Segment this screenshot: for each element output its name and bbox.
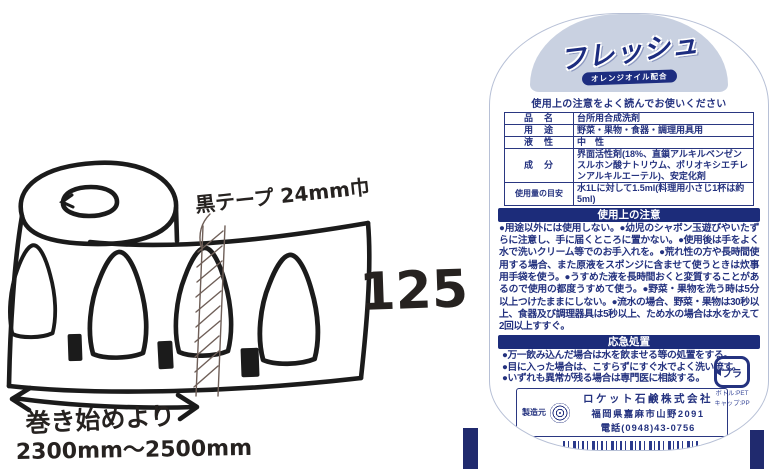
volume-text: 600ml [514, 441, 556, 451]
table-row: 液 性 中 性 [505, 136, 754, 148]
barcode [563, 441, 701, 451]
spec-value: 中 性 [574, 136, 754, 148]
product-label: フレッシュ オレンジオイル配合 使用上の注意をよく読んでお使いください 品 名 … [489, 13, 769, 451]
pura-recycle-icon: プラ [714, 356, 750, 388]
table-row: 品 名 台所用合成洗剤 [505, 113, 754, 125]
roll-right-edge [176, 208, 177, 241]
registration-mark-3 [241, 348, 260, 378]
brand-subtitle-badge: オレンジオイル配合 [582, 69, 677, 85]
spec-value: 台所用合成洗剤 [574, 113, 754, 125]
length-range-annotation: 2300mm〜2500mm [16, 436, 253, 465]
usage-caution-header: 使用上の注意 [498, 208, 760, 222]
spec-label: 使用量の目安 [505, 182, 574, 205]
roll-outline [21, 163, 176, 244]
tape-width-annotation: 黒テープ 24mm巾 [194, 175, 371, 217]
bottle-edge-right [750, 430, 764, 469]
spec-label: 液 性 [505, 136, 574, 148]
registration-mark-2 [157, 341, 173, 370]
usage-caution-body: ●用途以外には使用しない。●幼児のシャボン玉遊びやいたずらに注意し、手に届くとこ… [499, 223, 759, 334]
manufacturer-label: 製造元 [522, 407, 546, 418]
spec-table: 品 名 台所用合成洗剤 用 途 野菜・果物・食器・調理用具用 液 性 中 性 成… [504, 112, 754, 206]
registration-mark-1 [68, 334, 83, 361]
table-row: 成 分 界面活性剤(18%、直鎖アルキルベンゼンスルホン酸ナトリウム、ポリオキシ… [505, 148, 754, 182]
first-aid-header: 応急処置 [498, 335, 760, 349]
manufacturer-name: ロケット石鹸株式会社 [574, 391, 722, 406]
hand-drawn-roll-sketch: 黒テープ 24mm巾 125 巻き始めより 2300mm〜2500mm [0, 0, 470, 469]
rocket-soap-logo-icon [550, 403, 570, 423]
manufacturer-address: 福岡県嘉麻市山野2091 [574, 406, 722, 420]
manufacturer-box: 製造元 ロケット石鹸株式会社 福岡県嘉麻市山野2091 電話(0948)43-0… [516, 388, 728, 437]
bottle-edge-left [463, 428, 478, 469]
plastic-recycle-mark: プラ ボトル:PET キャップ:PP [710, 356, 754, 407]
spec-label: 成 分 [505, 148, 574, 182]
recycle-material-cap: キャップ:PP [710, 400, 754, 408]
volume-block: 600ml 0609 [514, 441, 556, 451]
manufacturer-info: ロケット石鹸株式会社 福岡県嘉麻市山野2091 電話(0948)43-0756 [574, 391, 722, 434]
strip-bottom-edge [9, 378, 361, 392]
table-row: 使用量の目安 水1Lに対して1.5ml(料理用小さじ1杯は約5ml) [505, 182, 754, 205]
winding-start-annotation: 巻き始めより [24, 401, 176, 438]
brand-logo: フレッシュ [557, 22, 701, 78]
label-dome: フレッシュ オレンジオイル配合 [530, 14, 728, 92]
spec-value: 水1Lに対して1.5ml(料理用小さじ1杯は約5ml) [574, 182, 754, 205]
printed-shape-4 [260, 255, 318, 364]
table-row: 用 途 野菜・果物・食器・調理用具用 [505, 124, 754, 136]
printed-shape-2 [90, 252, 146, 358]
scanned-page: 黒テープ 24mm巾 125 巻き始めより 2300mm〜2500mm フレッシ… [0, 0, 769, 469]
strip-height-annotation: 125 [358, 259, 469, 323]
spec-value: 野菜・果物・食器・調理用具用 [574, 124, 754, 136]
spec-label: 品 名 [505, 113, 574, 125]
manufacturer-phone: 電話(0948)43-0756 [574, 420, 722, 434]
usage-notice-line: 使用上の注意をよく読んでお使いください [490, 95, 768, 110]
recycle-material-bottle: ボトル:PET [710, 390, 754, 398]
volume-barcode-row: 600ml 0609 [514, 441, 768, 451]
spec-value: 界面活性剤(18%、直鎖アルキルベンゼンスルホン酸ナトリウム、ポリオキシエチレン… [574, 148, 754, 182]
roll-hole [63, 187, 117, 216]
spec-label: 用 途 [505, 124, 574, 136]
